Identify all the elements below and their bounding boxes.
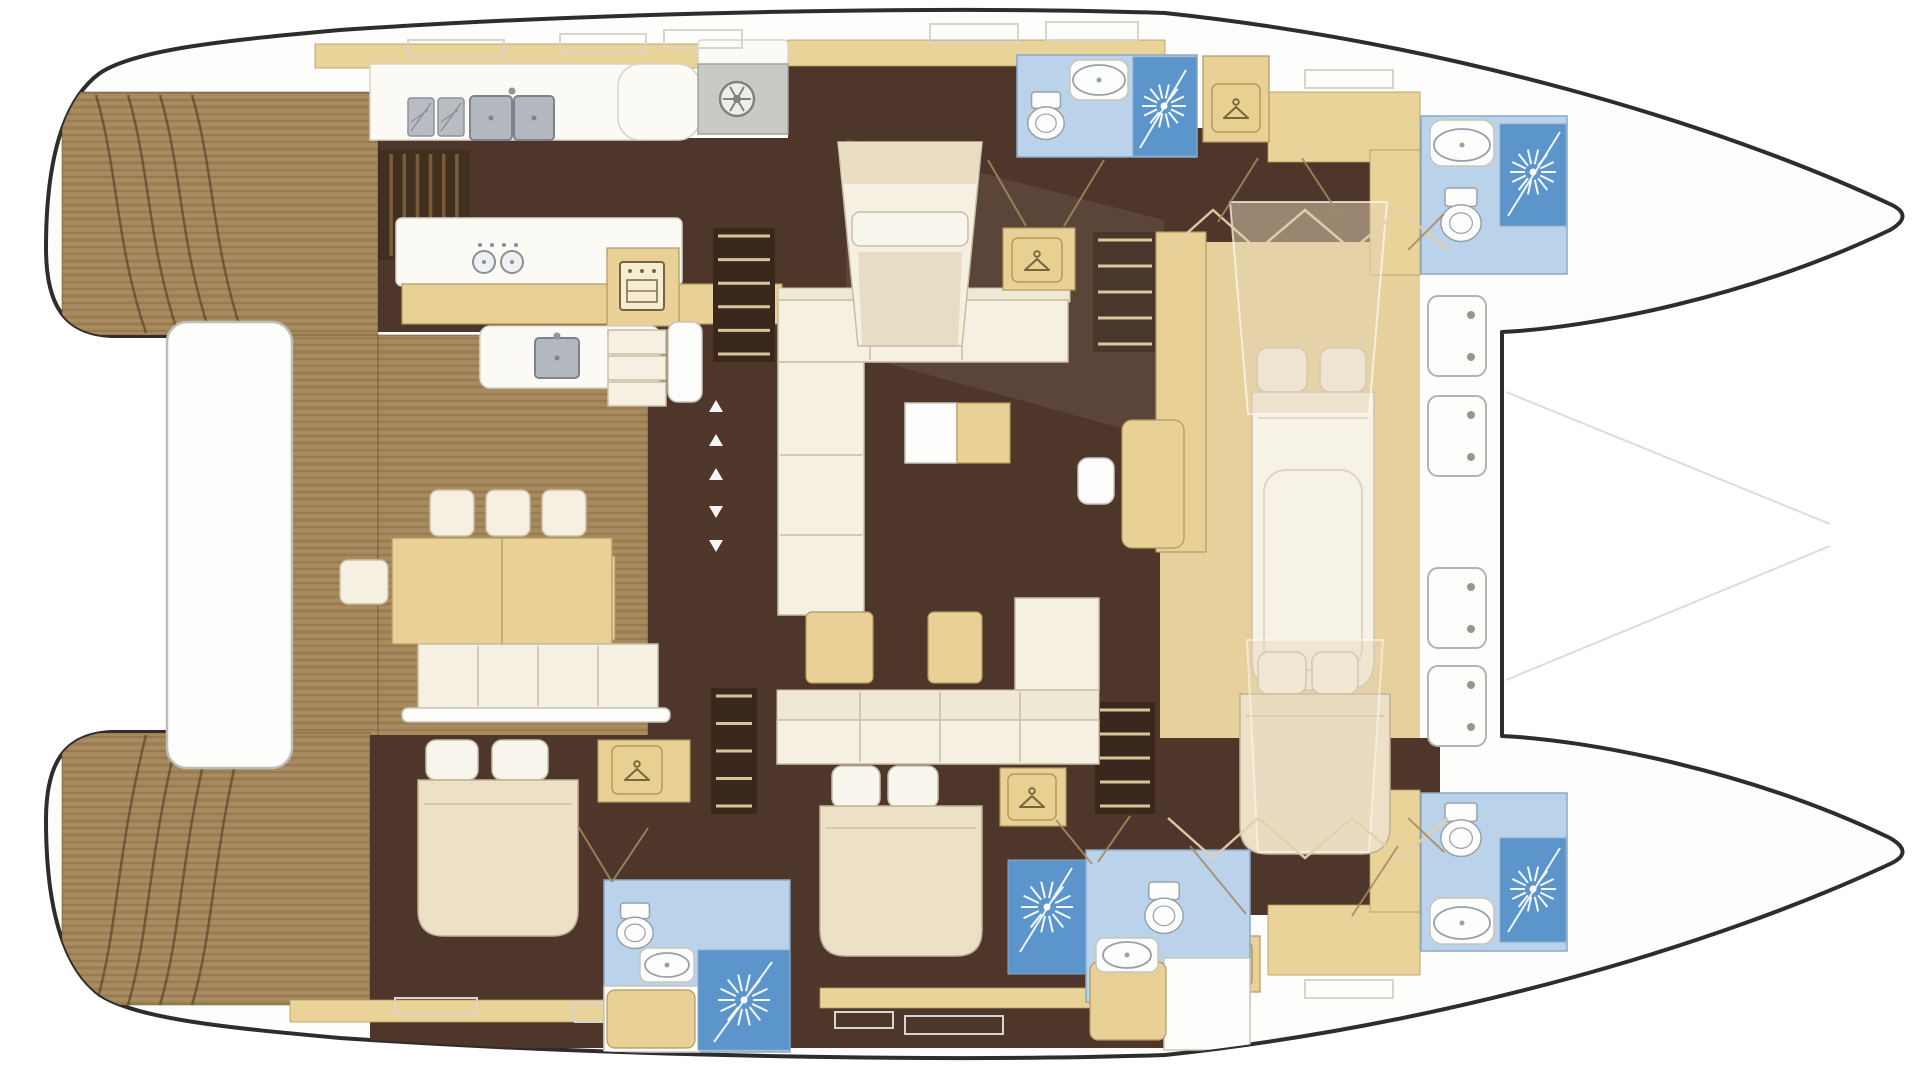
sink-icon <box>1434 129 1490 161</box>
fore-stbd-wardrobe-band <box>1268 905 1420 975</box>
galley-sink-icon <box>514 96 554 140</box>
cockpit-dining-chair <box>486 490 530 536</box>
stairs-port-aft <box>713 228 775 362</box>
bed-port-mid-mattress <box>852 212 968 246</box>
coffee-table-white-half <box>905 403 957 463</box>
companionway-step <box>608 330 666 354</box>
deck-hatch <box>1428 296 1486 376</box>
shower-stbd-mid <box>1008 860 1086 974</box>
salon-stool <box>1078 458 1114 504</box>
deck-hatch <box>1428 666 1486 746</box>
oven-icon <box>620 262 664 310</box>
yacht-floorplan-svg <box>0 0 1920 1067</box>
wardrobe-hanger-icon <box>1212 84 1260 132</box>
faucet-dot-icon <box>554 333 561 340</box>
stairs-stbd-fwd <box>1095 702 1155 814</box>
toilet-icon <box>1028 92 1064 140</box>
bed-pillow <box>426 740 478 780</box>
toilet-icon <box>1145 882 1183 933</box>
deck-hatch <box>1428 568 1486 648</box>
bed-aft-port-duvet <box>418 780 578 936</box>
bed-pillow <box>832 766 880 808</box>
bath-counter <box>607 990 695 1048</box>
companionway-step <box>608 382 666 406</box>
dish-rack-icon <box>438 98 464 136</box>
cockpit-dining-chair <box>340 560 388 604</box>
helm-wheel-icon <box>720 82 754 116</box>
wardrobe-hanger-icon <box>612 746 662 794</box>
galley-sink-icon <box>470 96 512 140</box>
teak-port-aft-deck <box>62 92 378 335</box>
deck-hatch <box>1428 396 1486 476</box>
coffee-table-beige-half <box>957 403 1010 463</box>
bed-stbd-mid-duvet <box>820 806 982 956</box>
salon-sofa-aft-seat <box>777 720 1099 764</box>
salon-sofa-fwd-chaise <box>778 362 864 615</box>
toilet-icon <box>1441 188 1481 241</box>
cockpit-dining-chair <box>542 490 586 536</box>
salon-sofa-aft-back <box>777 690 1099 720</box>
toilet-icon <box>1441 803 1481 856</box>
salon-bench <box>1122 420 1184 548</box>
bed-port-mid-foot-tint <box>858 252 962 346</box>
bath-floor-white <box>1164 958 1250 1050</box>
foredeck-seat-overlay <box>1230 202 1387 414</box>
wardrobe-hanger-icon <box>1008 774 1056 820</box>
wardrobe-hanger-icon <box>1012 238 1062 282</box>
cockpit-dining-table <box>392 538 502 644</box>
cockpit-bench-base <box>402 708 670 722</box>
stairs-stbd-aft <box>711 688 757 814</box>
sink-icon <box>645 953 689 977</box>
foredeck-seat-overlay <box>1247 640 1383 852</box>
foredeck-rigging-line <box>1506 392 1830 524</box>
galley-sink-icon <box>535 338 579 378</box>
cockpit-dining-table <box>502 538 612 644</box>
dish-rack-icon <box>408 98 434 136</box>
salon-ottoman <box>806 612 873 683</box>
salon-sofa-aft-chaise <box>1015 598 1099 690</box>
teak-side-walkway <box>292 335 378 740</box>
tender-platform <box>167 322 292 768</box>
bath-counter <box>1090 962 1166 1040</box>
foredeck-rigging-line <box>1506 546 1830 680</box>
sink-icon <box>1073 65 1125 95</box>
galley-counter-end <box>618 64 700 140</box>
salon-ottoman <box>928 612 982 683</box>
faucet-dot-icon <box>509 88 516 95</box>
sink-icon <box>1434 907 1490 939</box>
toilet-icon <box>617 903 653 949</box>
bed-port-mid-head <box>838 142 982 184</box>
cockpit-dining-chair <box>430 490 474 536</box>
companionway-step <box>608 356 666 380</box>
bed-pillow <box>888 766 938 808</box>
bed-pillow <box>492 740 548 780</box>
floorplan-canvas <box>0 0 1920 1067</box>
stair-landing <box>668 322 702 402</box>
sink-icon <box>1103 942 1151 968</box>
deck-strip-bottom-mid <box>820 988 1110 1008</box>
